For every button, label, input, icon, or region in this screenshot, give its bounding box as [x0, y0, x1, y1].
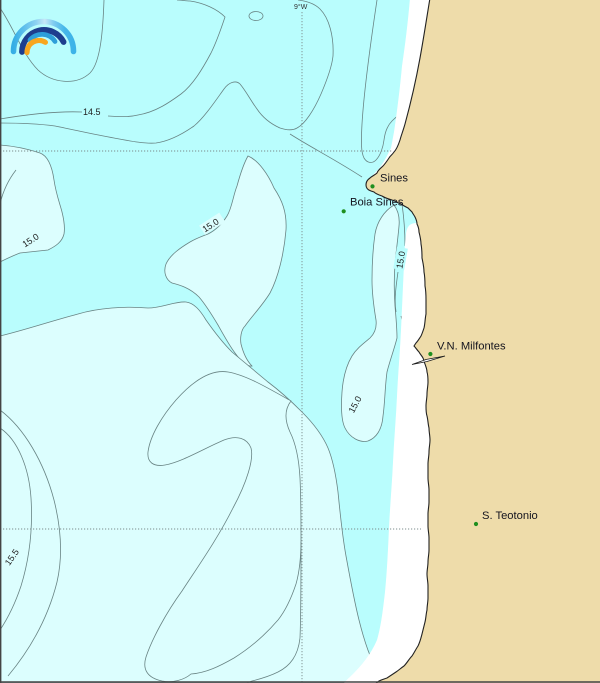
svg-text:S. Teotonio: S. Teotonio — [482, 510, 538, 522]
svg-text:14.5: 14.5 — [83, 107, 101, 117]
svg-text:V.N. Milfontes: V.N. Milfontes — [437, 340, 506, 352]
svg-text:Sines: Sines — [380, 172, 408, 184]
svg-text:9°W: 9°W — [294, 3, 308, 11]
svg-text:Boia Sines: Boia Sines — [350, 196, 404, 208]
